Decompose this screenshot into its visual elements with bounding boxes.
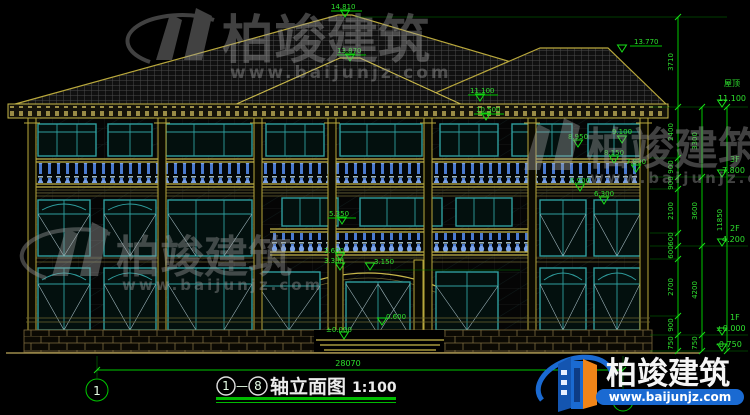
title-axis-dash: — — [236, 379, 248, 393]
cad-elevation-drawing: 14.810 13.870 13.770 11.100 10.500 9.100… — [0, 0, 750, 415]
window — [108, 124, 152, 156]
level-roof-label: 屋顶 — [724, 79, 740, 88]
title-axis-start: 1 — [222, 379, 230, 393]
watermark-bottom-right: 柏竣建筑 www.baijunjz.com — [538, 356, 744, 412]
level-1f-elev: ±0.000 — [716, 324, 746, 333]
spot-sill1f: 0.600 — [386, 313, 406, 321]
window — [594, 268, 640, 330]
watermark-site: www.baijunjz.com — [230, 63, 452, 83]
axis-1-number: 1 — [93, 384, 101, 398]
dim-750b: 750 — [691, 336, 699, 349]
dim-3710: 3710 — [667, 53, 675, 71]
level-1f-label: 1F — [730, 313, 740, 322]
window — [540, 268, 586, 330]
title-axis-end: 8 — [254, 379, 262, 393]
spot-porch-band: 3.300 — [324, 257, 344, 265]
balustrade-3f — [32, 159, 644, 187]
level-roof-elev: 11.100 — [718, 94, 746, 103]
drawing-scale: 1:100 — [352, 380, 397, 396]
window — [38, 124, 96, 156]
axis-bubble-1: 1 — [86, 379, 108, 401]
level-2f-elev: 4.200 — [722, 235, 745, 244]
spot-win2f-top: 6.900 — [570, 177, 590, 185]
window — [436, 272, 498, 330]
spot-ground: ±0.000 — [326, 326, 352, 334]
spot-ridge-right: 13.770 — [634, 38, 659, 46]
dim-600b: 600 — [667, 245, 675, 258]
window — [540, 200, 586, 256]
dim-750a: 750 — [667, 336, 675, 349]
dim-total-height: 11850 — [716, 209, 724, 231]
dim-600a: 600 — [667, 232, 675, 245]
spot-ridge-main: 14.810 — [331, 3, 356, 11]
spot-win3f-top: 10.500 — [476, 106, 501, 114]
watermark-site: www.baijunjz.com — [609, 390, 732, 404]
window — [456, 198, 512, 226]
window — [340, 124, 422, 156]
spot-mid2f: 5.350 — [329, 210, 349, 218]
drawing-title-block: 1 — 8 轴立面图 1:100 — [216, 375, 397, 403]
level-ground-elev: -0.750 — [716, 340, 742, 349]
window — [594, 200, 640, 256]
drawing-canvas: 14.810 13.870 13.770 11.100 10.500 9.100… — [0, 0, 750, 415]
spot-canopy: 3.150 — [374, 258, 394, 266]
level-2f-label: 2F — [730, 224, 740, 233]
spot-eave: 11.100 — [470, 87, 495, 95]
window — [440, 124, 498, 156]
watermark-site: www.baijunjz.com — [590, 169, 750, 187]
watermark-brand: 柏竣建筑 — [586, 124, 750, 175]
level-1f: 1F ±0.000 — [716, 313, 746, 335]
spot-porch-top: 3.600 — [324, 247, 344, 255]
spot-balcony2f: 6.300 — [594, 190, 614, 198]
window — [166, 124, 252, 156]
dim-total-width: 28070 — [335, 359, 360, 368]
watermark-brand: 柏竣建筑 — [222, 11, 430, 71]
dim-900c: 900 — [667, 318, 675, 331]
watermark-brand: 柏竣建筑 — [606, 356, 730, 392]
window — [266, 124, 324, 156]
dim-2700: 2700 — [667, 278, 675, 296]
level-roof: 屋顶 11.100 — [718, 79, 747, 107]
drawing-title: 轴立面图 — [270, 375, 346, 398]
dim-2100: 2100 — [667, 202, 675, 220]
dim-4200: 4200 — [691, 281, 699, 299]
watermark-site: www.baijunjz.com — [122, 276, 323, 294]
eave-dentils — [10, 106, 666, 116]
dim-3600: 3600 — [691, 202, 699, 220]
